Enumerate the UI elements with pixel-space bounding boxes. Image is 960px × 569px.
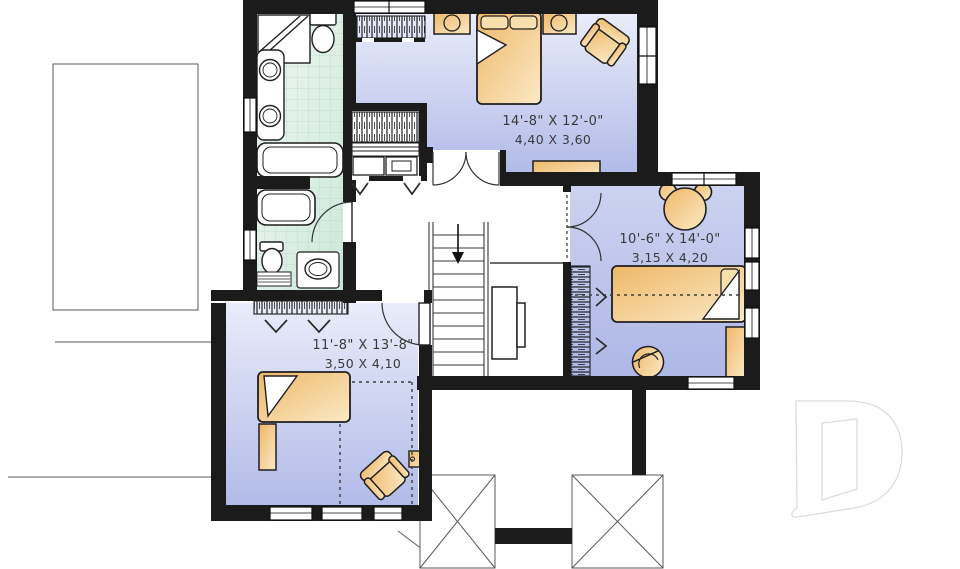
window [354, 1, 425, 13]
window [322, 507, 362, 520]
window [672, 173, 736, 185]
room-dim-metric: 3,15 X 4,20 [619, 249, 720, 267]
closet-rod-hatch [571, 266, 590, 376]
bathtub-icon [257, 143, 343, 177]
french-doors-master [433, 152, 499, 185]
sink2-icon [297, 252, 339, 288]
closet-shelf-slats [352, 143, 419, 156]
dresser-icon [259, 424, 276, 470]
window [688, 377, 734, 389]
room-dim-imperial: 10'-6" X 14'-0" [619, 231, 720, 249]
double-bed-icon [477, 12, 541, 104]
staircase [429, 222, 488, 378]
room-label-front: 11'-8" X 13'-8" 3,50 X 4,10 [312, 337, 413, 373]
hall-cabinet-side [517, 303, 525, 347]
closet-drawer [353, 157, 384, 175]
roof-left-panel [53, 64, 198, 310]
roof-dormer-right [572, 475, 663, 568]
window [374, 507, 402, 520]
window [745, 308, 759, 338]
room-dim-metric: 3,50 X 4,10 [312, 355, 413, 373]
room-label-master: 14'-8" X 12'-0" 4,40 X 3,60 [502, 113, 603, 149]
hall-closet-unit [352, 112, 419, 175]
window [745, 262, 759, 290]
window [270, 507, 312, 520]
room-dim-imperial: 14'-8" X 12'-0" [502, 113, 603, 131]
toilet2-icon [260, 242, 283, 274]
bathtub2-icon [257, 190, 315, 225]
kids-bed-icon [612, 266, 746, 322]
stairs-down-arrow-icon [452, 224, 464, 264]
floor-plan-canvas: 14'-8" X 12'-0" 4,40 X 3,60 10'-6" X 14'… [0, 0, 960, 569]
heater-vent-icon [257, 272, 291, 286]
nightstand-left [434, 13, 470, 34]
window [639, 27, 656, 84]
vanity-sinks-icon [257, 50, 284, 140]
closet-rod-hatch [254, 301, 348, 314]
closet-rod-hatch [352, 112, 419, 142]
hall-cabinet [492, 287, 517, 359]
toilet-icon [310, 12, 336, 53]
dresser-icon [726, 327, 746, 378]
room-label-kids: 10'-6" X 14'-0" 3,15 X 4,20 [619, 231, 720, 267]
window [244, 230, 256, 260]
window [745, 228, 759, 258]
twin-bed-icon [258, 372, 350, 422]
closet-rod-hatch [356, 16, 425, 38]
room-dim-imperial: 11'-8" X 13'-8" [312, 337, 413, 355]
floor-plan-drawing [0, 0, 960, 569]
nightstand-right [543, 13, 576, 34]
watermark-d-logo [792, 401, 902, 517]
window [244, 98, 256, 132]
hall-landing [490, 263, 563, 359]
room-dim-metric: 4,40 X 3,60 [502, 131, 603, 149]
